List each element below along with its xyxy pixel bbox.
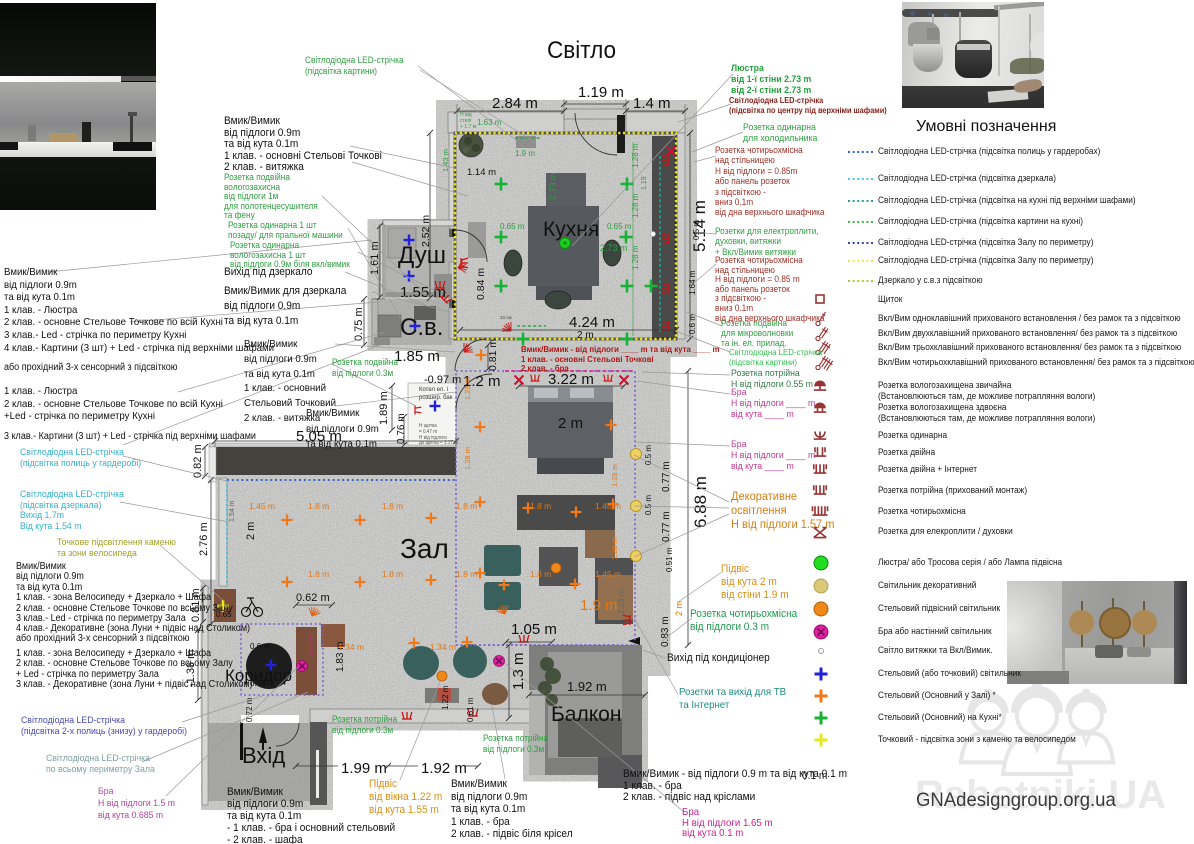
svg-text:0.6 m: 0.6 m bbox=[250, 642, 270, 651]
svg-text:1.54 m: 1.54 m bbox=[229, 500, 236, 522]
svg-text:0.84 m: 0.84 m bbox=[475, 268, 487, 300]
svg-text:0.83 m: 0.83 m bbox=[660, 616, 671, 647]
svg-text:0.61 m: 0.61 m bbox=[466, 697, 475, 722]
svg-text:1.8 m: 1.8 m bbox=[382, 569, 403, 579]
svg-text:Душ: Душ bbox=[398, 242, 446, 269]
svg-text:1.19 m: 1.19 m bbox=[578, 84, 624, 101]
svg-text:0.81 m: 0.81 m bbox=[487, 339, 499, 371]
svg-text:1.9 m: 1.9 m bbox=[580, 597, 618, 614]
svg-text:1.28 m: 1.28 m bbox=[631, 143, 640, 168]
svg-text:0.6 m: 0.6 m bbox=[688, 314, 697, 334]
svg-text:Зал: Зал bbox=[400, 533, 449, 564]
svg-text:1.89 m: 1.89 m bbox=[378, 391, 390, 425]
svg-text:1.14 m: 1.14 m bbox=[467, 167, 496, 178]
svg-text:1.3 m: 1.3 m bbox=[510, 652, 527, 690]
svg-text:1.45 m: 1.45 m bbox=[595, 569, 621, 579]
svg-text:1.28 m: 1.28 m bbox=[463, 447, 472, 470]
svg-text:2.73 m: 2.73 m bbox=[548, 172, 558, 200]
svg-text:1.45 m: 1.45 m bbox=[249, 501, 275, 511]
svg-text:1.8 m: 1.8 m bbox=[530, 501, 551, 511]
svg-text:1.92 m: 1.92 m bbox=[421, 760, 467, 777]
svg-text:1.99 m: 1.99 m bbox=[341, 760, 387, 777]
svg-text:2.84 m: 2.84 m bbox=[492, 95, 538, 112]
svg-text:1.45 m: 1.45 m bbox=[595, 501, 621, 511]
svg-text:0.685m: 0.685m bbox=[309, 634, 316, 658]
svg-text:1.64 m: 1.64 m bbox=[688, 270, 697, 295]
svg-text:1.28 m: 1.28 m bbox=[463, 377, 472, 400]
svg-text:1.28 m: 1.28 m bbox=[631, 193, 640, 218]
svg-text:1.92 m: 1.92 m bbox=[567, 679, 607, 694]
svg-text:1.8 m: 1.8 m bbox=[308, 501, 329, 511]
svg-text:2.73 m: 2.73 m bbox=[600, 243, 628, 253]
svg-text:-0.97 m: -0.97 m bbox=[424, 374, 461, 386]
svg-text:0.5 m: 0.5 m bbox=[644, 495, 653, 515]
svg-text:Вхід: Вхід bbox=[242, 743, 285, 768]
svg-text:2 m: 2 m bbox=[674, 601, 684, 616]
svg-text:1.34 m: 1.34 m bbox=[430, 642, 456, 652]
svg-text:0.65 m: 0.65 m bbox=[607, 222, 632, 231]
svg-text:Балкон: Балкон bbox=[551, 703, 621, 726]
svg-text:1.55 m: 1.55 m bbox=[400, 284, 446, 301]
svg-text:1.19: 1.19 bbox=[641, 176, 648, 190]
svg-text:1.8 m: 1.8 m bbox=[530, 569, 551, 579]
svg-text:1.05 m: 1.05 m bbox=[511, 621, 557, 638]
svg-text:0.65 m: 0.65 m bbox=[500, 222, 525, 231]
svg-text:1.8 m: 1.8 m bbox=[382, 501, 403, 511]
svg-text:2 m: 2 m bbox=[577, 330, 594, 341]
svg-text:4.24 m: 4.24 m bbox=[569, 314, 615, 331]
svg-text:0.77 m: 0.77 m bbox=[661, 461, 672, 492]
svg-text:2 m: 2 m bbox=[245, 522, 257, 540]
svg-text:0.77 m: 0.77 m bbox=[661, 511, 672, 542]
svg-text:1.9 m: 1.9 m bbox=[515, 149, 535, 158]
svg-text:1.34 m: 1.34 m bbox=[338, 642, 364, 652]
svg-text:0.51 m: 0.51 m bbox=[665, 547, 674, 572]
svg-text:1.28 m: 1.28 m bbox=[610, 464, 619, 487]
svg-text:+ 1.7 м: + 1.7 м bbox=[460, 124, 477, 130]
svg-text:2.23 m: 2.23 m bbox=[617, 589, 626, 614]
svg-text:Кухня: Кухня bbox=[543, 218, 599, 241]
svg-text:1.4 m: 1.4 m bbox=[633, 95, 671, 112]
svg-text:1.43 m: 1.43 m bbox=[441, 149, 450, 172]
svg-text:6.88 m: 6.88 m bbox=[691, 476, 710, 528]
svg-text:0.62 m: 0.62 m bbox=[296, 592, 330, 604]
svg-text:10 см: 10 см bbox=[500, 315, 512, 320]
svg-text:2.76 m: 2.76 m bbox=[198, 522, 210, 556]
svg-text:1.28 m: 1.28 m bbox=[610, 537, 619, 560]
svg-text:С.в.: С.в. bbox=[400, 314, 443, 341]
svg-text:1.28 m: 1.28 m bbox=[631, 245, 640, 270]
svg-text:2 m: 2 m bbox=[558, 415, 583, 432]
svg-text:0.5 m: 0.5 m bbox=[692, 220, 701, 240]
svg-text:1.8 m: 1.8 m bbox=[308, 569, 329, 579]
svg-text:3.22 m: 3.22 m bbox=[548, 371, 594, 388]
svg-text:0.75 m: 0.75 m bbox=[353, 307, 365, 341]
svg-text:1.8 m: 1.8 m bbox=[456, 501, 477, 511]
svg-text:1.22 m: 1.22 m bbox=[441, 685, 450, 710]
svg-text:0.76 m: 0.76 m bbox=[396, 413, 407, 444]
svg-text:1.8 m: 1.8 m bbox=[456, 569, 477, 579]
